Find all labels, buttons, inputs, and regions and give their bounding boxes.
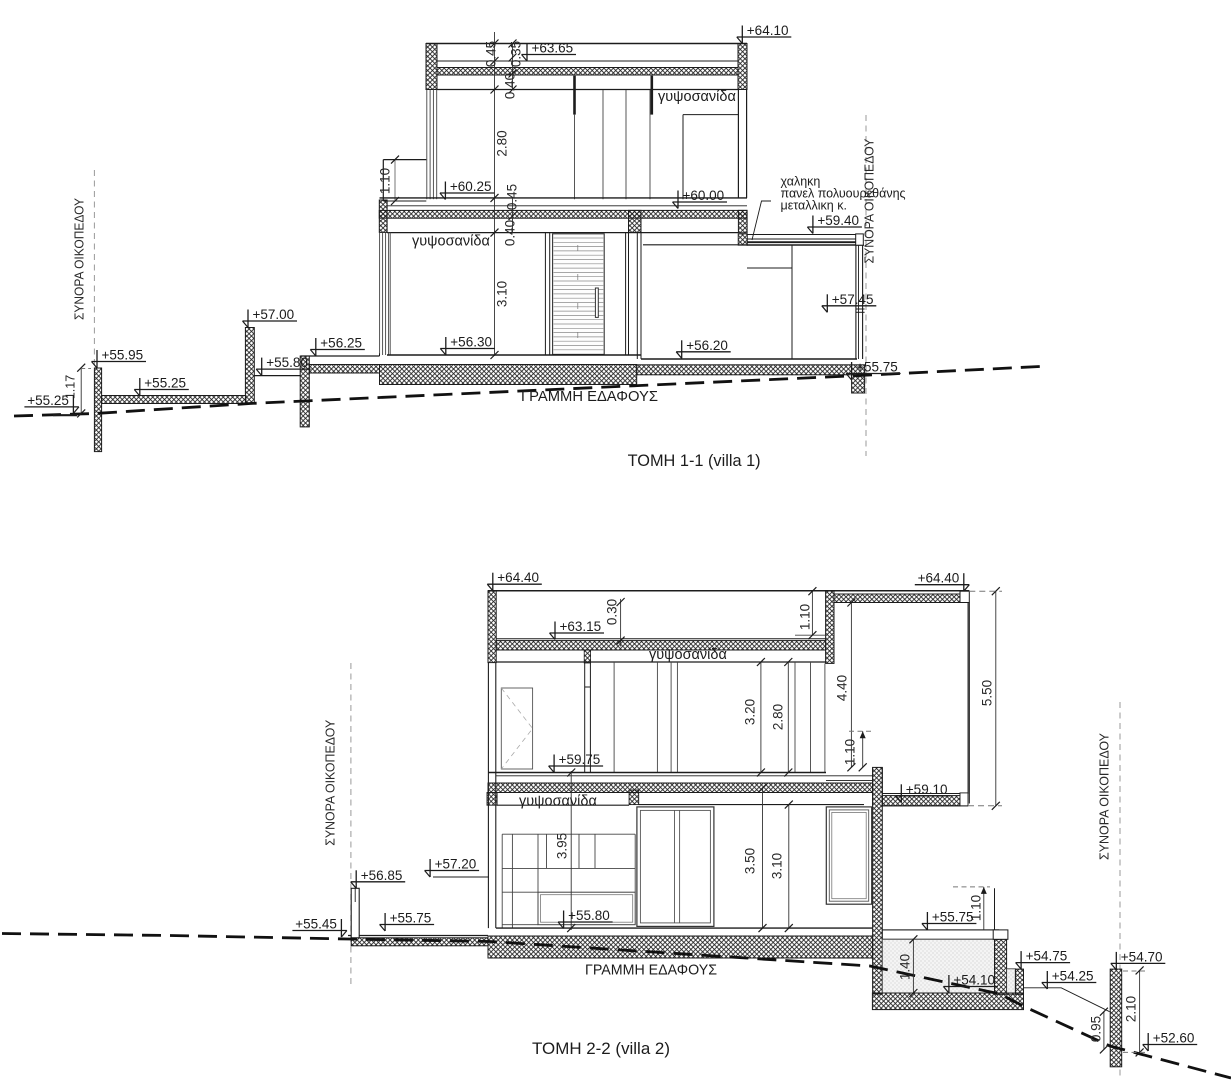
svg-text:+55.25: +55.25 bbox=[27, 393, 69, 408]
svg-text:ΤΟΜΗ 2-2 (villa 2): ΤΟΜΗ 2-2 (villa 2) bbox=[532, 1039, 670, 1058]
svg-text:+54.10: +54.10 bbox=[953, 973, 995, 988]
svg-text:+55.75: +55.75 bbox=[390, 911, 432, 926]
svg-text:+56.85: +56.85 bbox=[361, 868, 403, 883]
svg-text:+60.00: +60.00 bbox=[683, 188, 725, 203]
svg-text:+64.40: +64.40 bbox=[918, 571, 960, 586]
svg-text:ΓΡΑΜΜΗ ΕΔΑΦΟΥΣ: ΓΡΑΜΜΗ ΕΔΑΦΟΥΣ bbox=[521, 388, 658, 405]
svg-text:0.95: 0.95 bbox=[1089, 1016, 1104, 1042]
svg-text:2.10: 2.10 bbox=[1124, 996, 1139, 1022]
svg-text:2.80: 2.80 bbox=[495, 130, 510, 156]
svg-text:+52.60: +52.60 bbox=[1153, 1031, 1195, 1046]
svg-text:+64.40: +64.40 bbox=[497, 570, 539, 585]
svg-text:+59.40: +59.40 bbox=[817, 213, 859, 228]
svg-text:0.40: 0.40 bbox=[503, 73, 518, 99]
svg-text:2.80: 2.80 bbox=[771, 704, 786, 730]
svg-text:γυψοσανίδα: γυψοσανίδα bbox=[519, 794, 597, 810]
svg-text:0.35: 0.35 bbox=[509, 41, 524, 67]
svg-text:μεταλλικη κ.: μεταλλικη κ. bbox=[781, 199, 847, 213]
svg-text:0.40: 0.40 bbox=[503, 220, 518, 246]
svg-text:4.40: 4.40 bbox=[835, 675, 850, 701]
svg-text:3.95: 3.95 bbox=[555, 833, 570, 859]
svg-text:+55.95: +55.95 bbox=[102, 348, 144, 363]
svg-text:+55.45: +55.45 bbox=[295, 917, 337, 932]
svg-text:+63.15: +63.15 bbox=[560, 619, 602, 634]
svg-text:γυψοσανίδα: γυψοσανίδα bbox=[649, 647, 727, 663]
svg-text:+56.20: +56.20 bbox=[686, 338, 728, 353]
svg-text:+57.45: +57.45 bbox=[832, 292, 874, 307]
svg-text:+56.30: +56.30 bbox=[450, 335, 492, 350]
svg-text:+64.10: +64.10 bbox=[747, 23, 789, 38]
svg-text:+54.25: +54.25 bbox=[1052, 969, 1094, 984]
svg-text:1.10: 1.10 bbox=[843, 739, 858, 765]
svg-text:1.10: 1.10 bbox=[378, 168, 393, 194]
svg-text:ΣΥΝΟΡΑ ΟΙΚΟΠΕΔΟΥ: ΣΥΝΟΡΑ ΟΙΚΟΠΕΔΟΥ bbox=[861, 138, 876, 263]
svg-text:+55.75: +55.75 bbox=[856, 360, 898, 375]
svg-text:ΤΟΜΗ 1-1 (villa 1): ΤΟΜΗ 1-1 (villa 1) bbox=[628, 451, 761, 470]
svg-text:3.10: 3.10 bbox=[495, 281, 510, 307]
svg-text:3.20: 3.20 bbox=[743, 699, 758, 725]
svg-text:0.30: 0.30 bbox=[605, 599, 620, 625]
svg-text:ΣΥΝΟΡΑ ΟΙΚΟΠΕΔΟΥ: ΣΥΝΟΡΑ ΟΙΚΟΠΕΔΟΥ bbox=[1096, 733, 1111, 860]
svg-text:+59.10: +59.10 bbox=[906, 782, 948, 797]
svg-text:+55.75: +55.75 bbox=[932, 910, 974, 925]
svg-text:1.10: 1.10 bbox=[798, 604, 813, 630]
svg-text:3.50: 3.50 bbox=[743, 848, 758, 874]
svg-text:γυψοσανίδα: γυψοσανίδα bbox=[412, 234, 490, 250]
svg-text:+54.70: +54.70 bbox=[1121, 949, 1163, 964]
svg-text:0.45: 0.45 bbox=[484, 41, 499, 67]
svg-text:γυψοσανίδα: γυψοσανίδα bbox=[658, 89, 736, 105]
svg-text:+54.75: +54.75 bbox=[1026, 949, 1068, 964]
svg-text:ΣΥΝΟΡΑ ΟΙΚΟΠΕΔΟΥ: ΣΥΝΟΡΑ ΟΙΚΟΠΕΔΟΥ bbox=[322, 719, 337, 845]
svg-text:+57.00: +57.00 bbox=[253, 307, 295, 322]
svg-text:ΣΥΝΟΡΑ ΟΙΚΟΠΕΔΟΥ: ΣΥΝΟΡΑ ΟΙΚΟΠΕΔΟΥ bbox=[71, 198, 86, 320]
svg-text:0.45: 0.45 bbox=[505, 184, 520, 210]
svg-text:1.40: 1.40 bbox=[898, 954, 913, 980]
svg-text:+59.75: +59.75 bbox=[559, 752, 601, 767]
svg-text:+55.80: +55.80 bbox=[568, 908, 610, 923]
svg-text:+55.80: +55.80 bbox=[266, 355, 308, 370]
svg-text:+60.25: +60.25 bbox=[450, 179, 492, 194]
svg-text:+63.65: +63.65 bbox=[532, 41, 574, 56]
svg-text:+55.25: +55.25 bbox=[144, 376, 186, 391]
svg-text:5.50: 5.50 bbox=[980, 680, 995, 706]
svg-text:+57.20: +57.20 bbox=[435, 857, 477, 872]
svg-text:3.10: 3.10 bbox=[770, 853, 785, 879]
svg-text:ΓΡΑΜΜΗ ΕΔΑΦΟΥΣ: ΓΡΑΜΜΗ ΕΔΑΦΟΥΣ bbox=[585, 962, 717, 979]
svg-text:+56.25: +56.25 bbox=[320, 336, 362, 351]
